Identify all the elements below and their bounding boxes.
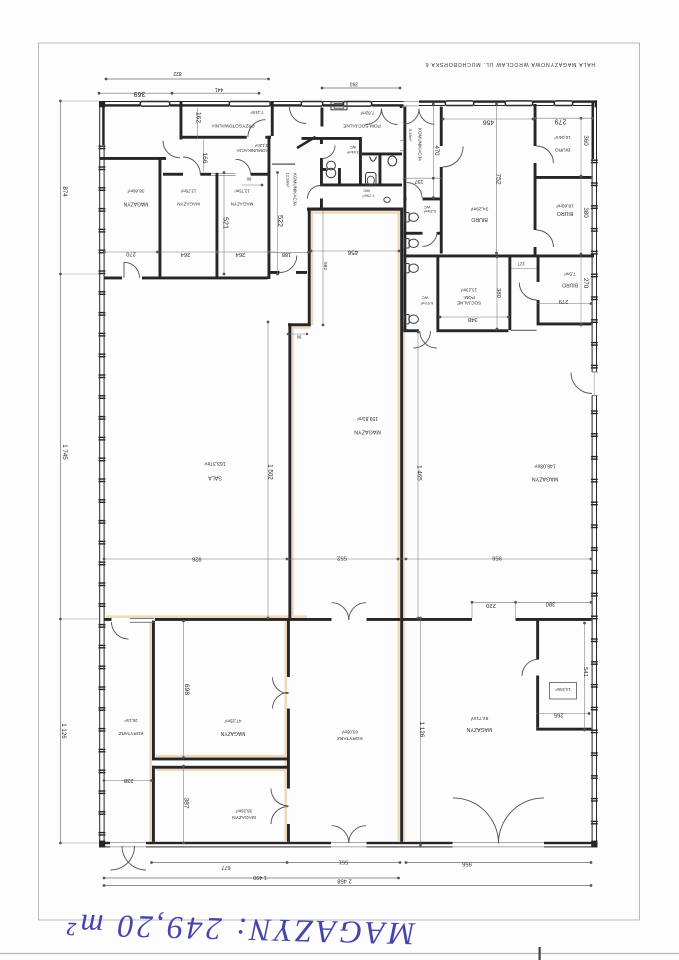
svg-text:7,79m²: 7,79m² [362, 194, 375, 199]
svg-text:13,12m²: 13,12m² [254, 143, 270, 148]
svg-text:456: 456 [347, 248, 358, 255]
svg-text:470: 470 [433, 145, 439, 156]
svg-text:380: 380 [495, 288, 501, 298]
svg-text:162: 162 [195, 112, 202, 123]
svg-text:146,08m²: 146,08m² [534, 462, 555, 468]
svg-text:WC: WC [422, 296, 429, 301]
svg-text:PRZYGOTOWALNIA: PRZYGOTOWALNIA [210, 123, 254, 128]
svg-text:MAGAZYN: MAGAZYN [177, 201, 200, 206]
svg-text:264: 264 [235, 251, 245, 257]
svg-text:47,25m²: 47,25m² [224, 719, 241, 724]
svg-text:POM.: POM. [463, 295, 475, 300]
svg-text:MAGAZYN: MAGAZYN [232, 814, 256, 820]
svg-text:9,26m²: 9,26m² [408, 129, 412, 142]
svg-text:26,1m²: 26,1m² [124, 718, 138, 723]
svg-text:380: 380 [582, 207, 589, 218]
svg-text:3,54m²: 3,54m² [346, 150, 359, 154]
svg-text:WC: WC [363, 189, 370, 194]
svg-text:956: 956 [492, 555, 502, 561]
svg-text:13,75m²: 13,75m² [180, 189, 196, 194]
svg-text:7,5m²: 7,5m² [564, 271, 576, 276]
svg-text:7,14m²: 7,14m² [250, 110, 264, 115]
svg-text:MAGAZYN: MAGAZYN [231, 201, 254, 206]
svg-text:592: 592 [322, 262, 328, 270]
svg-text:SALA: SALA [208, 474, 222, 480]
svg-text:360: 360 [582, 135, 589, 146]
svg-text:541: 541 [582, 667, 588, 677]
svg-text:5,29m²: 5,29m² [423, 209, 436, 214]
svg-text:1 465: 1 465 [416, 465, 423, 481]
svg-text:279: 279 [555, 118, 567, 125]
svg-text:926: 926 [192, 556, 202, 562]
svg-text:96: 96 [296, 335, 301, 340]
svg-text:14,34m²: 14,34m² [555, 687, 571, 692]
svg-text:92,71m²: 92,71m² [470, 715, 488, 721]
svg-text:34,29m²: 34,29m² [470, 205, 488, 211]
svg-text:MAGAZYN: MAGAZYN [532, 475, 559, 481]
svg-text:822: 822 [173, 70, 182, 76]
svg-text:KOMUNIKACJA: KOMUNIKACJA [293, 173, 298, 207]
svg-text:188: 188 [282, 251, 291, 257]
svg-text:698: 698 [183, 684, 190, 696]
svg-text:1 502: 1 502 [267, 464, 274, 480]
svg-text:387: 387 [183, 797, 190, 809]
svg-text:264: 264 [180, 251, 190, 257]
svg-text:393: 393 [350, 81, 359, 87]
svg-text:238: 238 [124, 777, 134, 783]
svg-text:90: 90 [246, 177, 251, 182]
svg-text:SOCJALNE: SOCJALNE [457, 301, 481, 306]
svg-text:1 126: 1 126 [418, 722, 425, 738]
svg-text:12,98m²: 12,98m² [286, 173, 291, 188]
svg-text:MAGAZYN: MAGAZYN [466, 726, 492, 732]
svg-text:522: 522 [276, 215, 285, 227]
svg-text:MAGAZYN: MAGAZYN [220, 730, 245, 736]
svg-text:13,75m²: 13,75m² [234, 189, 250, 194]
svg-text:220: 220 [486, 602, 496, 608]
svg-text:163,37m²: 163,37m² [204, 460, 225, 466]
svg-text:BIURO: BIURO [557, 210, 573, 216]
svg-text:38,86m²: 38,86m² [127, 188, 144, 193]
svg-text:521: 521 [222, 217, 231, 229]
svg-text:MAGAZYN: MAGAZYN [354, 429, 381, 435]
svg-text:380: 380 [546, 601, 556, 607]
svg-text:456: 456 [483, 118, 495, 125]
svg-text:KOMUNIKACJA: KOMUNIKACJA [237, 148, 269, 153]
svg-text:270: 270 [126, 251, 136, 257]
svg-text:159,81m²: 159,81m² [357, 415, 378, 421]
svg-text:BIURO: BIURO [555, 147, 570, 153]
svg-text:348: 348 [468, 316, 478, 322]
svg-text:KOMUNIKACJA: KOMUNIKACJA [418, 128, 423, 162]
svg-text:BIURO: BIURO [562, 282, 578, 288]
svg-text:7,82m²: 7,82m² [360, 110, 374, 115]
svg-text:KORYTARZ: KORYTARZ [337, 735, 363, 741]
svg-text:HALA MAGAZYNOWA WROCŁAW UL. MU: HALA MAGAZYNOWA WROCŁAW UL. MUCHOBORSKA … [425, 61, 595, 67]
svg-text:166: 166 [201, 152, 208, 163]
svg-text:13,23m²: 13,23m² [460, 288, 477, 293]
svg-text:WC: WC [350, 145, 357, 149]
svg-text:18,60m²: 18,60m² [556, 202, 574, 208]
svg-text:441: 441 [215, 86, 224, 92]
svg-text:BIURO: BIURO [471, 216, 487, 222]
svg-text:38,26m²: 38,26m² [235, 809, 252, 814]
svg-text:6,97m²: 6,97m² [420, 301, 433, 306]
svg-text:127: 127 [517, 262, 525, 267]
svg-text:677: 677 [222, 864, 231, 870]
svg-text:874: 874 [61, 186, 68, 197]
svg-text:551: 551 [339, 858, 349, 864]
svg-text:270: 270 [582, 278, 589, 289]
svg-text:10,04m²: 10,04m² [554, 135, 571, 140]
svg-text:265: 265 [554, 712, 564, 718]
svg-text:369: 369 [134, 90, 146, 97]
svg-text:1 126: 1 126 [60, 723, 67, 739]
svg-text:552: 552 [337, 555, 347, 561]
svg-text:MAGAZYN: MAGAZYN [123, 200, 148, 206]
svg-text:63,05m²: 63,05m² [341, 729, 358, 734]
svg-text:2 458: 2 458 [337, 877, 352, 883]
svg-text:279: 279 [559, 298, 569, 304]
svg-text:956: 956 [462, 861, 472, 867]
svg-text:752: 752 [495, 173, 502, 185]
svg-text:197: 197 [415, 178, 424, 184]
svg-text:KORYTARZ: KORYTARZ [119, 731, 144, 736]
svg-text:POM.SOCJALNE: POM.SOCJALNE [343, 123, 381, 129]
svg-text:1 745: 1 745 [61, 444, 68, 460]
svg-text:1 490: 1 490 [253, 874, 267, 880]
